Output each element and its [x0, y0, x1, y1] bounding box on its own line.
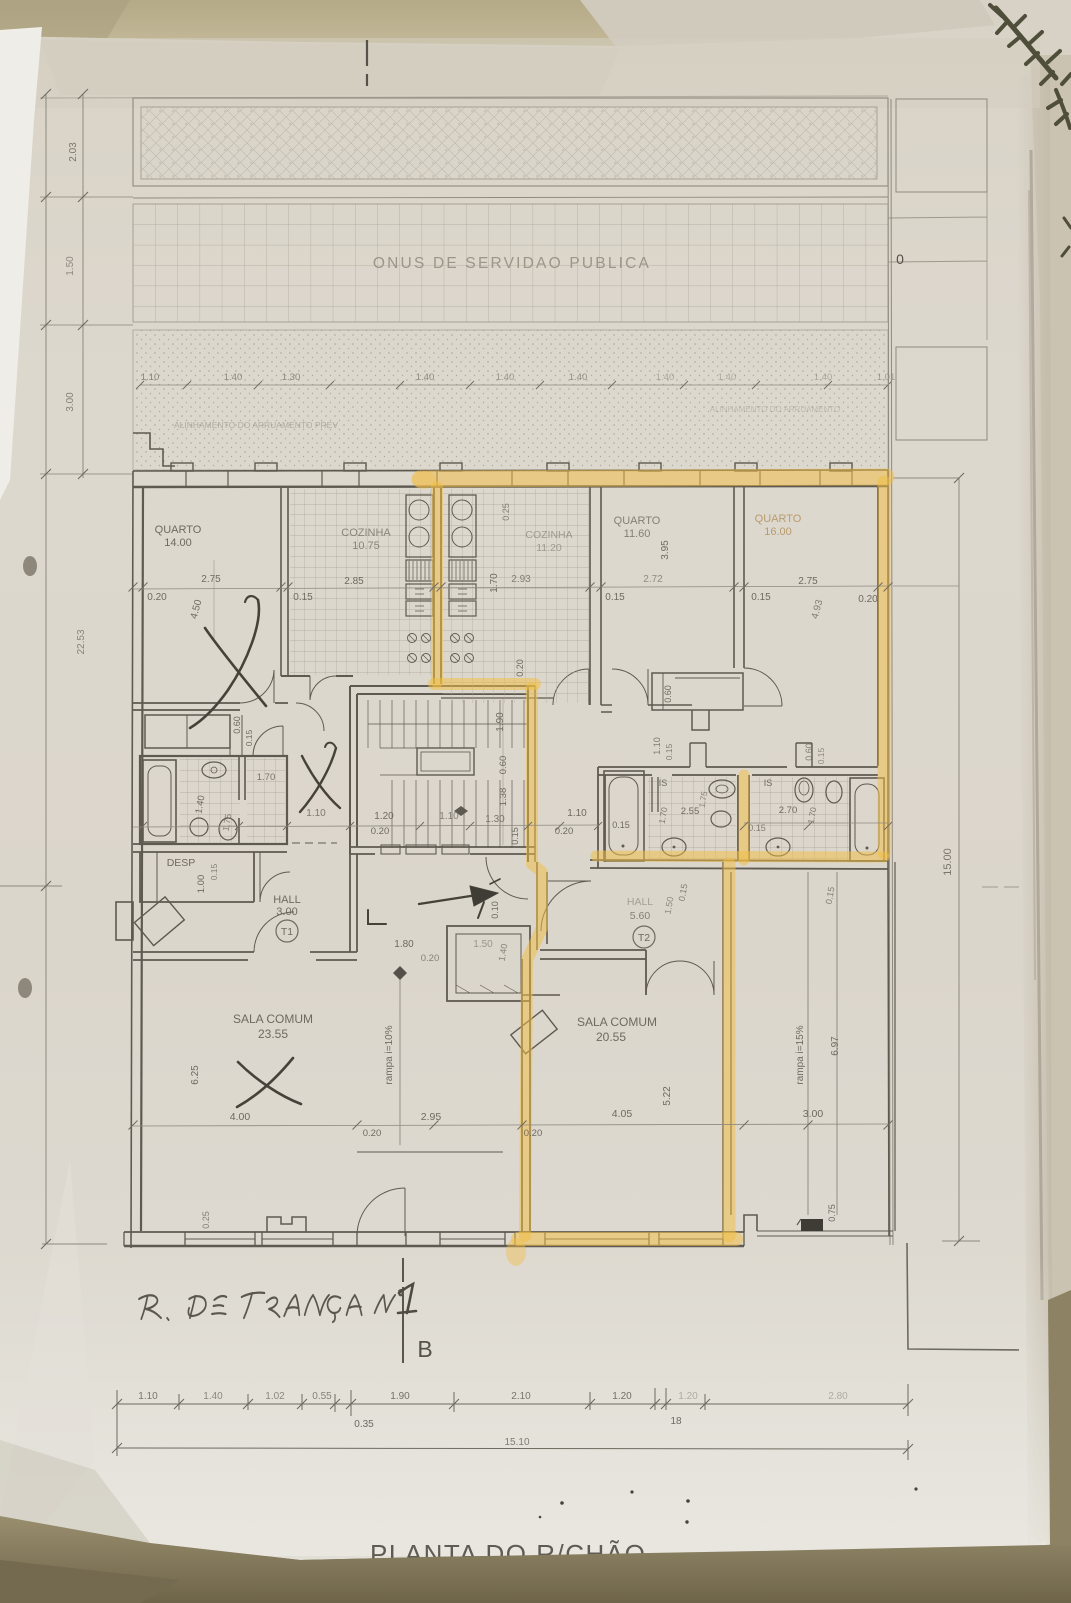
- svg-text:1.70: 1.70: [489, 573, 500, 593]
- svg-text:0.20: 0.20: [524, 1128, 543, 1139]
- svg-text:11.60: 11.60: [624, 528, 651, 540]
- svg-text:ALINHAMENTO DO ARRUAMENTO PREV: ALINHAMENTO DO ARRUAMENTO PREV: [174, 420, 338, 430]
- svg-text:2.72: 2.72: [643, 574, 663, 585]
- svg-text:0.15: 0.15: [209, 863, 219, 880]
- svg-text:10.75: 10.75: [352, 540, 380, 552]
- svg-text:0.60: 0.60: [498, 756, 509, 775]
- svg-text:0.55: 0.55: [312, 1391, 332, 1402]
- svg-text:HALL: HALL: [627, 896, 653, 908]
- svg-text:0.60: 0.60: [804, 743, 814, 761]
- svg-text:B: B: [417, 1336, 432, 1362]
- svg-text:15.00: 15.00: [942, 848, 954, 876]
- svg-text:COZINHA: COZINHA: [525, 529, 572, 541]
- svg-text:1.90: 1.90: [495, 712, 506, 732]
- svg-text:18: 18: [670, 1416, 682, 1427]
- svg-text:2.10: 2.10: [511, 1391, 531, 1402]
- svg-text:0.20: 0.20: [371, 826, 390, 837]
- svg-text:ALINHAMENTO DO ARRUAMENTO: ALINHAMENTO DO ARRUAMENTO: [710, 405, 840, 414]
- svg-text:6.25: 6.25: [190, 1065, 201, 1085]
- svg-text:0.20: 0.20: [858, 594, 878, 605]
- svg-text:1.40: 1.40: [224, 372, 243, 383]
- svg-text:1.10: 1.10: [439, 811, 459, 822]
- svg-text:1.10: 1.10: [652, 737, 662, 755]
- svg-text:5.22: 5.22: [662, 1086, 673, 1106]
- svg-text:1.10: 1.10: [306, 808, 326, 819]
- svg-text:0.15: 0.15: [605, 592, 625, 603]
- svg-text:2.75: 2.75: [798, 576, 818, 587]
- svg-text:1.40: 1.40: [656, 372, 675, 383]
- svg-text:1.50: 1.50: [473, 939, 493, 950]
- svg-text:22.53: 22.53: [76, 629, 87, 654]
- svg-text:COZINHA: COZINHA: [341, 527, 391, 539]
- svg-text:14.00: 14.00: [164, 537, 192, 549]
- svg-text:2.85: 2.85: [344, 576, 364, 587]
- svg-text:SALA COMUM: SALA COMUM: [233, 1012, 313, 1026]
- svg-text:1.30: 1.30: [282, 372, 301, 383]
- svg-text:T1: T1: [281, 926, 293, 938]
- svg-text:1.30: 1.30: [485, 814, 505, 825]
- svg-text:1.10: 1.10: [138, 1391, 158, 1402]
- svg-text:20.55: 20.55: [596, 1030, 626, 1044]
- svg-text:0.15: 0.15: [816, 747, 826, 764]
- svg-text:1.00: 1.00: [196, 875, 207, 894]
- svg-text:15.10: 15.10: [504, 1437, 529, 1448]
- svg-text:0.15: 0.15: [664, 743, 674, 760]
- svg-text:1.01: 1.01: [877, 372, 896, 383]
- svg-text:IS: IS: [659, 778, 668, 788]
- svg-text:3.00: 3.00: [803, 1108, 824, 1120]
- svg-text:2.75: 2.75: [201, 574, 221, 585]
- svg-text:QUARTO: QUARTO: [155, 524, 202, 536]
- svg-text:16.00: 16.00: [764, 526, 792, 538]
- svg-text:ONUS DE SERVIDAO PUBLICA: ONUS DE SERVIDAO PUBLICA: [373, 255, 651, 272]
- svg-text:0.15: 0.15: [244, 729, 254, 746]
- svg-text:0.15: 0.15: [510, 827, 520, 845]
- svg-text:11.20: 11.20: [536, 542, 562, 554]
- svg-text:0.60: 0.60: [663, 685, 673, 703]
- svg-text:1.40: 1.40: [496, 372, 515, 383]
- svg-text:3.00: 3.00: [276, 906, 297, 918]
- svg-text:1.20: 1.20: [612, 1391, 632, 1402]
- svg-text:3.00: 3.00: [65, 392, 76, 412]
- svg-text:rampa i=15%: rampa i=15%: [795, 1025, 806, 1084]
- svg-text:QUARTO: QUARTO: [755, 513, 802, 525]
- svg-text:1.40: 1.40: [814, 372, 833, 383]
- svg-text:1.90: 1.90: [390, 1391, 410, 1402]
- svg-text:2.03: 2.03: [68, 142, 79, 162]
- svg-text:4.00: 4.00: [230, 1111, 251, 1123]
- svg-text:6.97: 6.97: [830, 1036, 841, 1056]
- svg-text:QUARTO: QUARTO: [614, 515, 661, 527]
- svg-text:0.20: 0.20: [515, 659, 525, 677]
- svg-text:1.70: 1.70: [257, 772, 276, 783]
- svg-text:1.10: 1.10: [567, 808, 587, 819]
- svg-text:1.02: 1.02: [265, 1391, 285, 1402]
- svg-text:4.05: 4.05: [612, 1108, 633, 1120]
- svg-text:DESP: DESP: [167, 857, 196, 869]
- svg-text:0.60: 0.60: [232, 716, 242, 734]
- svg-text:1.40: 1.40: [569, 372, 588, 383]
- svg-text:0.15: 0.15: [612, 820, 630, 830]
- svg-text:0: 0: [896, 251, 904, 267]
- svg-text:2.95: 2.95: [421, 1111, 442, 1123]
- svg-text:23.55: 23.55: [258, 1027, 288, 1041]
- svg-text:SALA COMUM: SALA COMUM: [577, 1015, 657, 1029]
- svg-text:3.95: 3.95: [660, 540, 671, 560]
- svg-text:0.15: 0.15: [748, 823, 766, 833]
- svg-text:2.70: 2.70: [779, 805, 798, 816]
- svg-text:T2: T2: [638, 932, 650, 944]
- svg-text:0.75: 0.75: [827, 1204, 837, 1222]
- svg-text:1.10: 1.10: [141, 372, 160, 383]
- svg-text:5.60: 5.60: [630, 910, 651, 922]
- svg-text:0.20: 0.20: [147, 592, 167, 603]
- svg-text:IS: IS: [764, 778, 773, 788]
- svg-text:1.40: 1.40: [718, 372, 737, 383]
- svg-text:HALL: HALL: [273, 894, 301, 906]
- svg-text:0.15: 0.15: [751, 592, 771, 603]
- svg-text:0.35: 0.35: [354, 1419, 374, 1430]
- svg-text:0.10: 0.10: [490, 901, 500, 919]
- svg-text:1.20: 1.20: [374, 811, 394, 822]
- svg-text:1.20: 1.20: [678, 1391, 698, 1402]
- svg-text:0.20: 0.20: [421, 953, 440, 964]
- svg-text:0.25: 0.25: [201, 1211, 211, 1229]
- svg-text:1.38: 1.38: [498, 788, 509, 807]
- svg-text:0.20: 0.20: [555, 826, 574, 837]
- svg-text:0.20: 0.20: [363, 1128, 382, 1139]
- svg-text:1.40: 1.40: [203, 1391, 223, 1402]
- svg-text:1.80: 1.80: [394, 939, 414, 950]
- svg-text:0.15: 0.15: [293, 592, 313, 603]
- svg-text:2.80: 2.80: [828, 1391, 848, 1402]
- svg-text:2.93: 2.93: [511, 574, 531, 585]
- svg-text:1.50: 1.50: [65, 256, 76, 276]
- svg-text:0.25: 0.25: [501, 503, 511, 521]
- svg-text:1.40: 1.40: [416, 372, 435, 383]
- svg-text:rampa i=10%: rampa i=10%: [384, 1025, 395, 1084]
